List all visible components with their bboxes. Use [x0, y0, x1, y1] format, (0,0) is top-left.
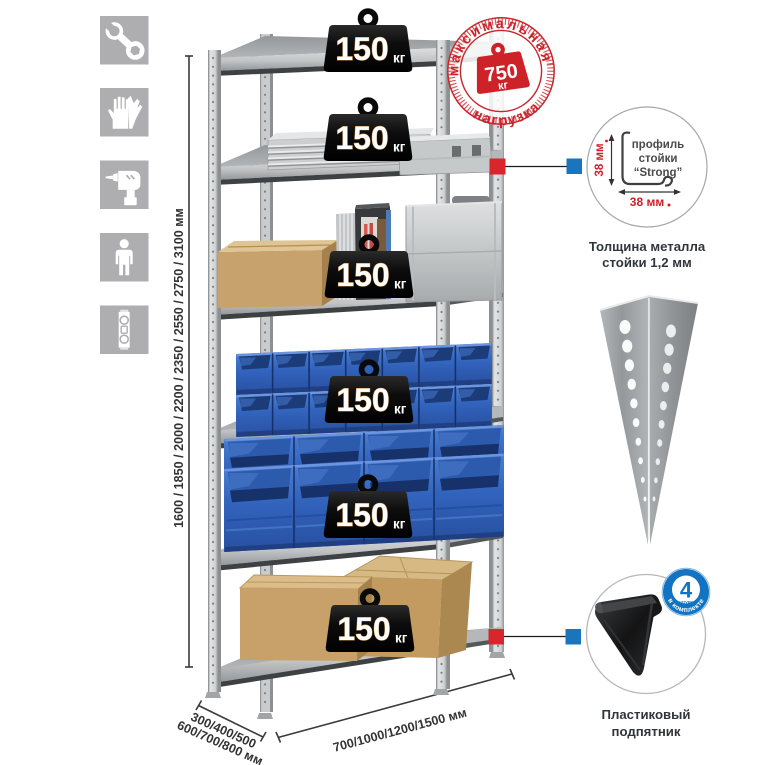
svg-text:150: 150: [337, 611, 390, 647]
svg-text:150: 150: [335, 31, 388, 67]
svg-text:150: 150: [335, 497, 388, 533]
svg-text:38 мм: 38 мм: [630, 195, 665, 209]
svg-text:150: 150: [336, 257, 389, 293]
svg-text:профиль: профиль: [632, 139, 685, 151]
svg-text:подпятник: подпятник: [611, 724, 680, 739]
svg-text:“Strong”: “Strong”: [634, 167, 683, 179]
svg-text:кг: кг: [394, 277, 407, 292]
svg-text:кг: кг: [393, 51, 406, 66]
svg-text:кг: кг: [394, 402, 407, 417]
svg-text:кг: кг: [497, 79, 509, 92]
svg-text:кг: кг: [393, 517, 406, 532]
svg-text:38 мм: 38 мм: [594, 143, 606, 176]
svg-text:150: 150: [335, 120, 388, 156]
svg-text:700/1000/1200/1500 мм: 700/1000/1200/1500 мм: [332, 706, 469, 755]
svg-text:150: 150: [336, 382, 389, 418]
svg-text:стойки: стойки: [639, 153, 678, 165]
svg-text:Пластиковый: Пластиковый: [601, 707, 690, 722]
svg-text:кг: кг: [393, 140, 406, 155]
svg-text:Толщина металла: Толщина металла: [589, 239, 706, 254]
svg-text:1600 / 1850 / 2000 / 2200 / 23: 1600 / 1850 / 2000 / 2200 / 2350 / 2550 …: [172, 208, 186, 528]
svg-text:стойки 1,2 мм: стойки 1,2 мм: [602, 255, 692, 270]
svg-text:штуки: штуки: [679, 600, 693, 605]
svg-text:кг: кг: [395, 631, 408, 646]
